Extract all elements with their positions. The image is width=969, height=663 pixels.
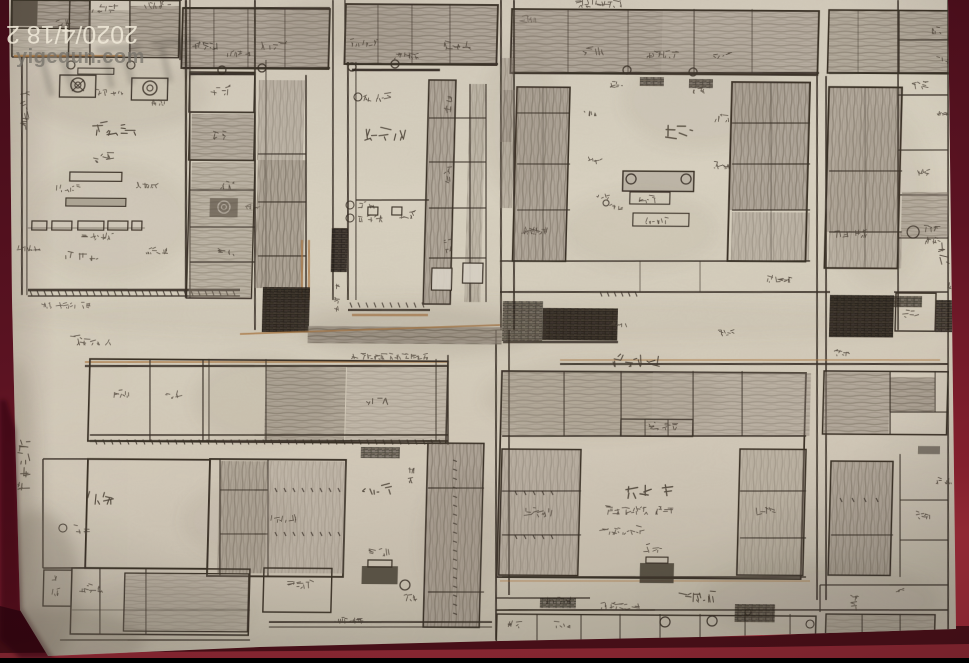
svg-text:yigequn.com: yigequn.com: [16, 46, 145, 68]
svg-text:2020/4/18 2: 2020/4/18 2: [6, 20, 138, 48]
